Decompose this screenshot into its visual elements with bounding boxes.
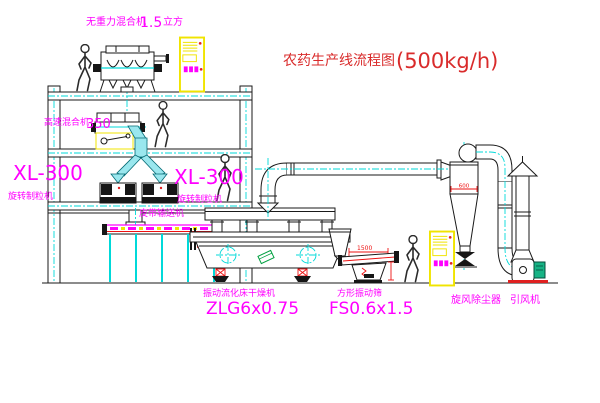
label-granulator-left-name: 旋转制粒机 — [8, 190, 53, 202]
label-granulator-right-name: 旋转制粒机 — [177, 193, 222, 205]
fan-base — [508, 280, 548, 283]
label-top-mixer-size: 1.5 — [140, 15, 162, 31]
label-top-mixer-unit: 立方 — [163, 15, 183, 28]
label-mid-mixer-name: 高速混合机 — [44, 116, 89, 128]
diagram-title: 农药生产线流程图 (500kg/h) — [283, 49, 498, 73]
control-cabinet-top — [180, 38, 204, 92]
cyclone-dimension-text: 600 — [459, 184, 470, 190]
label-fan: 引风机 — [510, 293, 540, 306]
process-flow-diagram: 600 1500 — [0, 0, 600, 403]
title-text: 农药生产线流程图 — [283, 53, 395, 69]
person-middle-floor — [155, 101, 169, 146]
dryer-feet — [212, 269, 311, 282]
label-granulator-right-model: XL-300 — [174, 165, 244, 189]
vibrating-screen: 1500 — [329, 229, 399, 283]
label-granulator-left-model: XL-300 — [13, 161, 83, 185]
granulator-right-machine — [142, 183, 178, 203]
screen-dimension-text: 1500 — [357, 245, 372, 252]
label-screen-name: 方形振动筛 — [337, 287, 382, 299]
title-capacity: (500kg/h) — [396, 49, 498, 73]
label-cyclone: 旋风除尘器 — [451, 293, 501, 306]
gravity-free-mixer — [93, 46, 169, 122]
label-belt-conveyor: 皮带输送机 — [139, 207, 184, 219]
label-mid-mixer-model: 350 — [86, 117, 111, 132]
label-dryer-model: ZLG6x0.75 — [206, 299, 299, 319]
granulator-left-machine — [100, 183, 136, 203]
dryer-hood-ports — [210, 220, 334, 232]
control-cabinet-ground — [430, 232, 454, 286]
person-top-floor — [77, 45, 91, 91]
person-ground — [405, 236, 419, 282]
label-dryer-name: 振动流化床干燥机 — [203, 287, 275, 299]
cyclone-rotary-valve — [453, 252, 477, 267]
induced-draft-fan — [508, 259, 548, 283]
diagram-canvas: 600 1500 — [0, 0, 600, 403]
label-top-mixer-name: 无重力混合机 — [86, 15, 146, 28]
label-screen-model: FS0.6x1.5 — [329, 299, 413, 319]
